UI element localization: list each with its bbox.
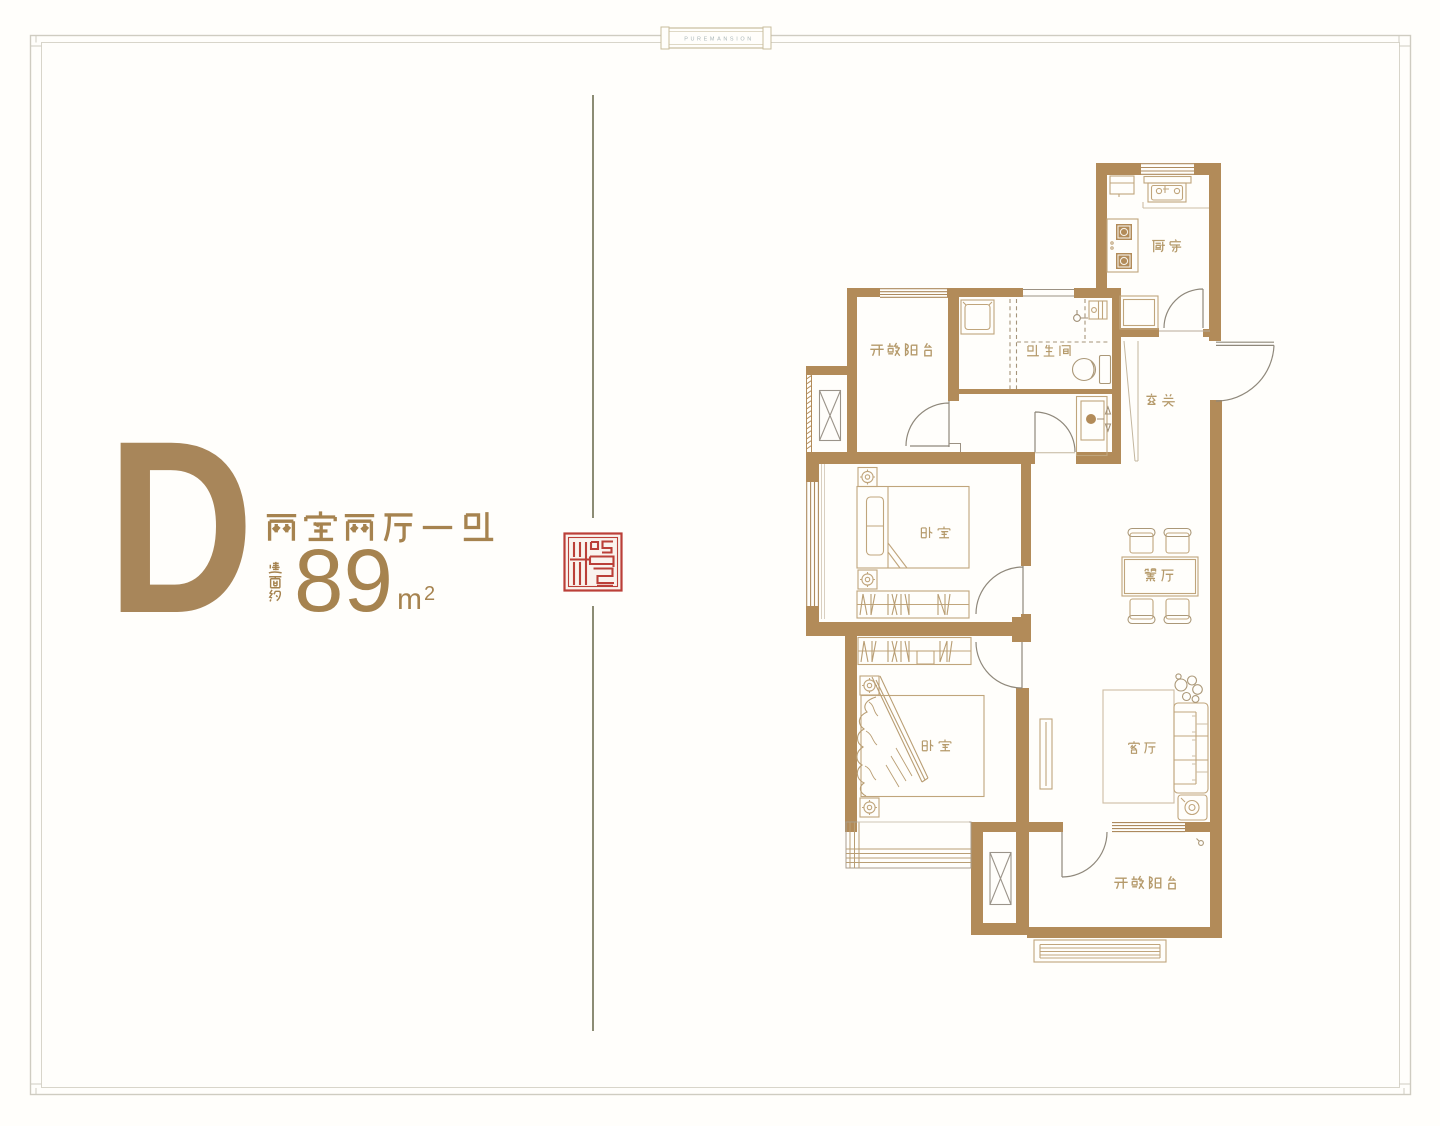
svg-text:D: D <box>107 390 254 664</box>
svg-text:89: 89 <box>294 530 393 630</box>
svg-text:m: m <box>397 583 422 616</box>
svg-text:PUREMANSION: PUREMANSION <box>684 37 754 43</box>
svg-text:2: 2 <box>424 583 435 605</box>
